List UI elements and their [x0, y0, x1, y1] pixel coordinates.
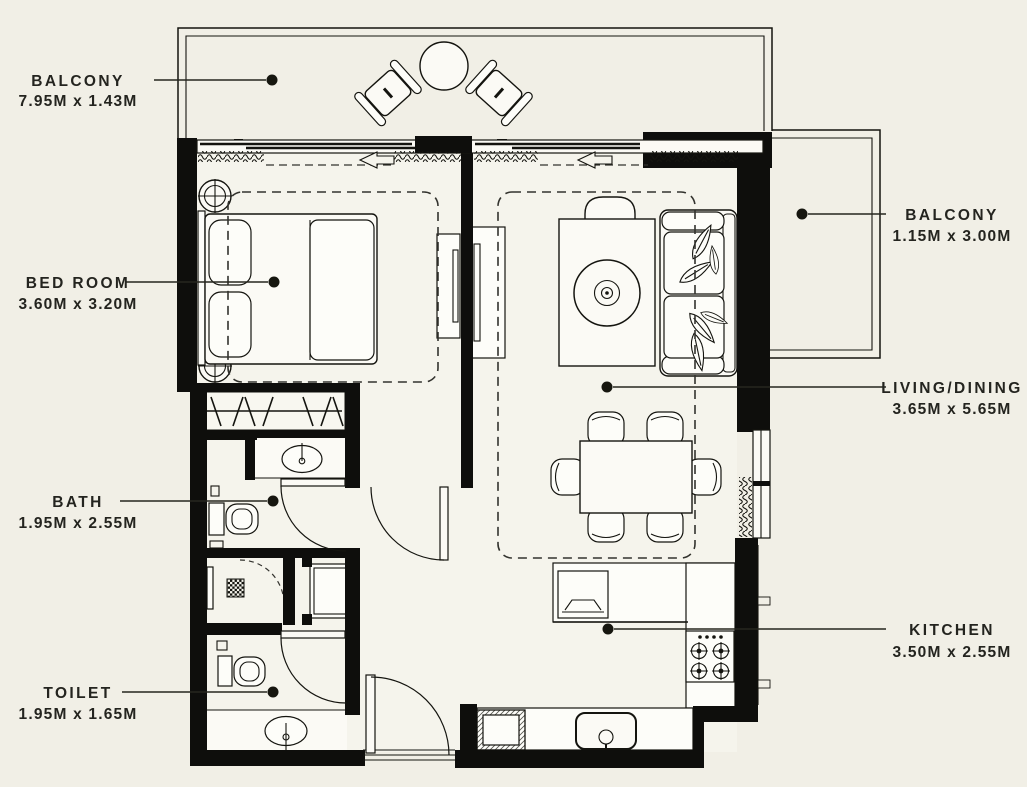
sofa: [660, 210, 737, 376]
room-dims: 3.65M x 5.65M: [893, 401, 1012, 418]
room-dims: 1.95M x 1.65M: [19, 706, 138, 723]
bed: [198, 211, 377, 365]
room-label: TOILET: [43, 685, 112, 702]
leader-dot: [602, 382, 613, 393]
floor-plan-page: BALCONY 7.95M x 1.43M BED ROOM 3.60M x 3…: [0, 0, 1027, 787]
room-label: KITCHEN: [909, 622, 995, 639]
headboard: [198, 211, 205, 365]
curtain-icon: [394, 151, 461, 162]
coffee-table: [559, 219, 655, 366]
shower-drain-icon: [227, 579, 244, 597]
room-label: BALCONY: [31, 73, 124, 90]
leader-dot: [797, 209, 808, 220]
leader-dot: [268, 687, 279, 698]
room-label: BALCONY: [905, 207, 998, 224]
shower-panel-icon: [207, 567, 213, 609]
armrest: [662, 356, 724, 374]
curtain-icon: [739, 477, 752, 537]
curtain-icon: [198, 151, 264, 162]
leader-dot: [268, 496, 279, 507]
pillow: [209, 220, 251, 285]
vent-icon: [758, 597, 770, 605]
room-dims: 7.95M x 1.43M: [19, 93, 138, 110]
stove-icon: [686, 631, 734, 682]
washing-machine-icon: [477, 710, 525, 750]
leader-dot: [269, 277, 280, 288]
armrest: [662, 212, 724, 230]
leader-dot: [267, 75, 278, 86]
room-dims: 1.15M x 3.00M: [893, 228, 1012, 245]
wardrobe: [197, 392, 345, 430]
room-dims: 3.50M x 2.55M: [893, 644, 1012, 661]
microwave-icon: [558, 571, 608, 618]
floor-plan: BALCONY 7.95M x 1.43M BED ROOM 3.60M x 3…: [0, 0, 1027, 787]
room-label: LIVING/DINING: [881, 380, 1022, 397]
curtain-icon: [650, 151, 738, 162]
balcony-table: [420, 42, 468, 90]
tv-console: [472, 227, 505, 358]
dining-table: [580, 441, 692, 513]
room-label: BED ROOM: [26, 275, 130, 292]
room-dims: 3.60M x 3.20M: [19, 296, 138, 313]
duvet: [310, 220, 374, 360]
tv-dresser: [437, 234, 460, 338]
toilet-wc-icon: [218, 656, 265, 686]
vent-icon: [758, 680, 770, 688]
bath-wc-icon: [209, 503, 258, 535]
curtain-icon: [474, 151, 538, 162]
pillow: [209, 292, 251, 357]
room-dims: 1.95M x 2.55M: [19, 515, 138, 532]
room-label: BATH: [52, 494, 104, 511]
laundry-unit: [310, 564, 350, 618]
leader-dot: [603, 624, 614, 635]
